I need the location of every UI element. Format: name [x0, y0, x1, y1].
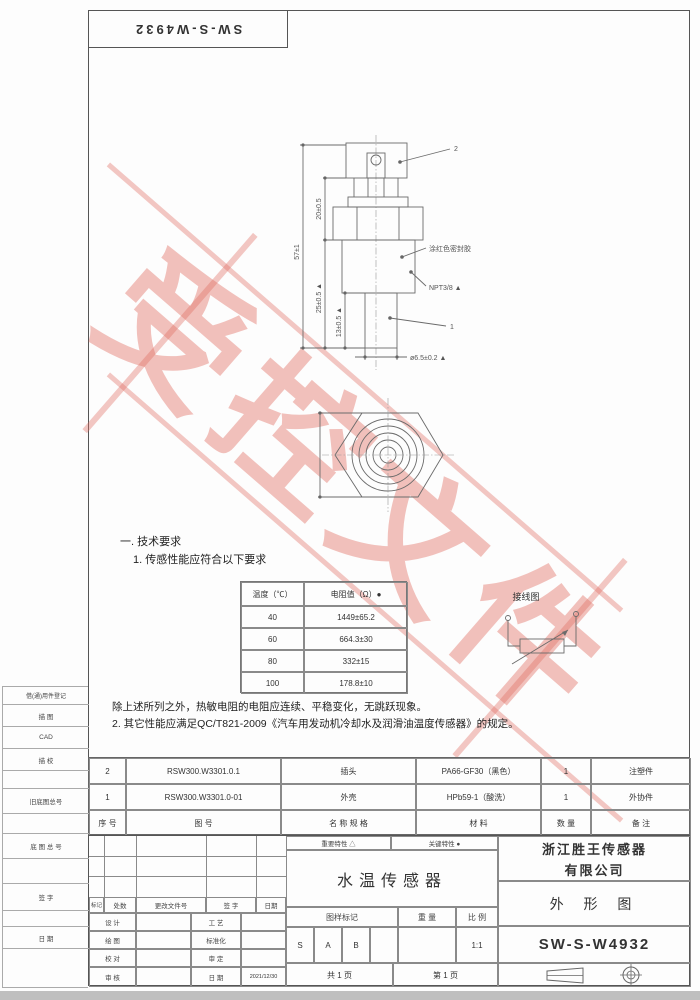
drawing-number: SW-S-W4932 [498, 926, 691, 963]
drawing-sheet: SW-S-W4932 受控文件 [0, 0, 700, 1000]
part-material: PA66-GF30（黑色） [416, 758, 541, 784]
parts-header-code: 图 号 [126, 810, 281, 836]
stamp-cell-a: A [314, 927, 342, 963]
tech-note: 除上述所列之外，热敏电阻的电阻应连续、平稳变化，无跳跃现象。 [112, 699, 427, 714]
view-type-label: 外 形 图 [498, 881, 691, 926]
parts-header-no: 序 号 [89, 810, 126, 836]
hex-nut-outline [333, 207, 423, 240]
doc-number-top-label: SW-S-W4932 [133, 22, 242, 37]
leader-line [390, 318, 446, 326]
wiring-diagram-label: 接线图 [512, 591, 539, 602]
leader-arrow [398, 160, 402, 164]
stamp-label: 图样标记 [286, 907, 398, 927]
parts-header-material: 材 料 [416, 810, 541, 836]
sign-label-date: 日 期 [191, 967, 241, 987]
rev-header-date: 日期 [256, 897, 286, 913]
key-characteristic-label: 关键特性 ● [391, 836, 498, 850]
parts-header-qty: 数 量 [541, 810, 591, 836]
res-cell: 664.3±30 [304, 628, 408, 650]
parts-header-remark: 备 注 [591, 810, 691, 836]
dim-overall: 57±1 [294, 244, 301, 260]
grid-v [206, 836, 207, 897]
doc-number-tab: SW-S-W4932 [88, 10, 288, 48]
thermistor-arrowhead [562, 630, 568, 636]
part-code: RSW300.W3301.0-01 [126, 784, 281, 810]
tech-line2: 2. 其它性能应满足QC/T821-2009《汽车用发动机冷却水及润滑油温度传感… [112, 716, 519, 731]
important-characteristic-label: 重要特性 △ [286, 836, 391, 850]
sensor-drawing: 57±1 20±0.5 25±0.5 ▲ 13±0.5 ▲ ø6.5±0.2 ▲… [280, 120, 620, 530]
sign-value [136, 913, 191, 931]
sign-value [241, 913, 286, 931]
thread-body-outline [342, 240, 415, 293]
scan-edge-strip [0, 991, 700, 1000]
margin-date: 日 期 [3, 927, 89, 949]
part-qty: 1 [541, 784, 591, 810]
res-cell: 100 [241, 672, 304, 694]
terminal [506, 616, 511, 621]
sign-label-proof: 校 对 [89, 949, 136, 967]
leader-arrow [388, 316, 392, 320]
margin-signature: 签 字 [3, 884, 89, 911]
probe-tube-outline [365, 293, 397, 348]
res-col-temp: 温度（℃） [241, 582, 304, 606]
dim-arrow [301, 346, 304, 349]
dim-upper: 20±0.5 [316, 198, 323, 219]
margin-trace-draw: 描 图 [3, 705, 89, 727]
part-remark: 注塑件 [591, 758, 691, 784]
wiring-diagram: 接线图 [478, 588, 603, 670]
stamp-cell-empty [370, 927, 398, 963]
sign-value [136, 949, 191, 967]
margin-cad: CAD [3, 727, 89, 749]
sign-label-standard: 标准化 [191, 931, 241, 949]
seal-note: 涂红色密封胶 [429, 244, 471, 253]
weight-value [398, 927, 456, 963]
sign-value [241, 931, 286, 949]
rev-header-sign: 签 字 [206, 897, 256, 913]
sign-label-process: 工 艺 [191, 913, 241, 931]
part-remark: 外协件 [591, 784, 691, 810]
sign-value [241, 949, 286, 967]
dim-arrow [363, 355, 366, 358]
rev-header-doc: 更改文件号 [136, 897, 206, 913]
scale-label: 比 例 [456, 907, 498, 927]
weight-label: 重 量 [398, 907, 456, 927]
margin-old-sheet-no: 旧底图总号 [3, 789, 89, 814]
rev-header-mark: 标记 [89, 897, 104, 913]
res-cell: 332±15 [304, 650, 408, 672]
res-cell: 178.8±10 [304, 672, 408, 694]
scale-value: 1:1 [456, 927, 498, 963]
grid-v [136, 836, 137, 897]
dim-arrow [323, 176, 326, 179]
thread-spec: NPT3/8 ▲ [429, 285, 462, 292]
dim-probe: 13±0.5 ▲ [336, 307, 343, 337]
grid-v [104, 836, 105, 897]
stamp-cell-b: B [342, 927, 370, 963]
dim-lower: 25±0.5 ▲ [316, 283, 323, 313]
res-cell: 80 [241, 650, 304, 672]
stamp-cell-s: S [286, 927, 314, 963]
margin-empty [3, 859, 89, 884]
grid-v [256, 836, 257, 897]
dim-arrow [318, 411, 321, 414]
balloon-1: 1 [450, 324, 454, 331]
sign-label-approve: 审 定 [191, 949, 241, 967]
terminal [574, 612, 579, 617]
sign-date-value: 2021/12/30 [241, 967, 286, 987]
leader-line [411, 272, 426, 286]
margin-register: 借(通)用件登记 [3, 687, 89, 705]
connector-outline [346, 143, 407, 178]
tech-heading: 一. 技术要求 [120, 533, 181, 549]
res-col-resistance: 电阻值（Ω）● [304, 582, 408, 606]
sign-value [136, 967, 191, 987]
dim-arrow [343, 291, 346, 294]
sign-label-audit: 审 核 [89, 967, 136, 987]
lead-wire [508, 620, 520, 646]
part-no: 2 [89, 758, 126, 784]
projection-symbols [498, 963, 691, 987]
part-name: 外壳 [281, 784, 416, 810]
product-name: 水温传感器 [286, 850, 498, 907]
company-line2: 有限公司 [564, 860, 624, 879]
sheet-count: 共 1 页 [286, 963, 393, 987]
title-block: 标记 处数 更改文件号 签 字 日期 设 计 工 艺 绘 图 标准化 校 对 审… [88, 835, 690, 986]
margin-empty [3, 814, 89, 834]
dim-arrow [323, 346, 326, 349]
part-material: HPb59-1（酸洗） [416, 784, 541, 810]
flange-outline [348, 197, 408, 207]
part-code: RSW300.W3301.0.1 [126, 758, 281, 784]
dim-arrow [318, 495, 321, 498]
res-cell: 40 [241, 606, 304, 628]
parts-table: 2 RSW300.W3301.0.1 插头 PA66-GF30（黑色） 1 注塑… [88, 757, 690, 835]
leader-arrow [400, 255, 404, 259]
res-cell: 1449±65.2 [304, 606, 408, 628]
balloon-2: 2 [454, 146, 458, 153]
margin-sheet-no: 底 图 总 号 [3, 834, 89, 859]
margin-empty [3, 911, 89, 927]
tech-line1: 1. 传感性能应符合以下要求 [133, 551, 266, 567]
margin-empty [3, 949, 89, 989]
margin-trace-check: 描 校 [3, 749, 89, 771]
part-no: 1 [89, 784, 126, 810]
parts-header-name: 名 称 规 格 [281, 810, 416, 836]
company-line1: 浙江胜王传感器 [542, 839, 647, 858]
sign-label-draw: 绘 图 [89, 931, 136, 949]
dim-arrow [301, 143, 304, 146]
margin-empty [3, 771, 89, 789]
res-cell: 60 [241, 628, 304, 650]
leader-arrow [409, 270, 413, 274]
resistance-table: 温度（℃） 电阻值（Ω）● 40 1449±65.2 60 664.3±30 8… [240, 581, 407, 693]
left-margin-column: 借(通)用件登记 描 图 CAD 描 校 旧底图总号 底 图 总 号 签 字 日… [2, 686, 88, 988]
dim-arrow [343, 346, 346, 349]
part-name: 插头 [281, 758, 416, 784]
rev-header-count: 处数 [104, 897, 136, 913]
first-angle-symbol-front [619, 963, 643, 987]
sheet-index: 第 1 页 [393, 963, 498, 987]
sign-value [136, 931, 191, 949]
part-qty: 1 [541, 758, 591, 784]
sign-label-design: 设 计 [89, 913, 136, 931]
company-name: 浙江胜王传感器 有限公司 [498, 836, 691, 881]
first-angle-symbol-side [546, 967, 584, 984]
dim-probe-dia: ø6.5±0.2 ▲ [410, 355, 446, 362]
dim-arrow [395, 355, 398, 358]
leader-line [402, 248, 426, 257]
leader-line [400, 149, 450, 162]
